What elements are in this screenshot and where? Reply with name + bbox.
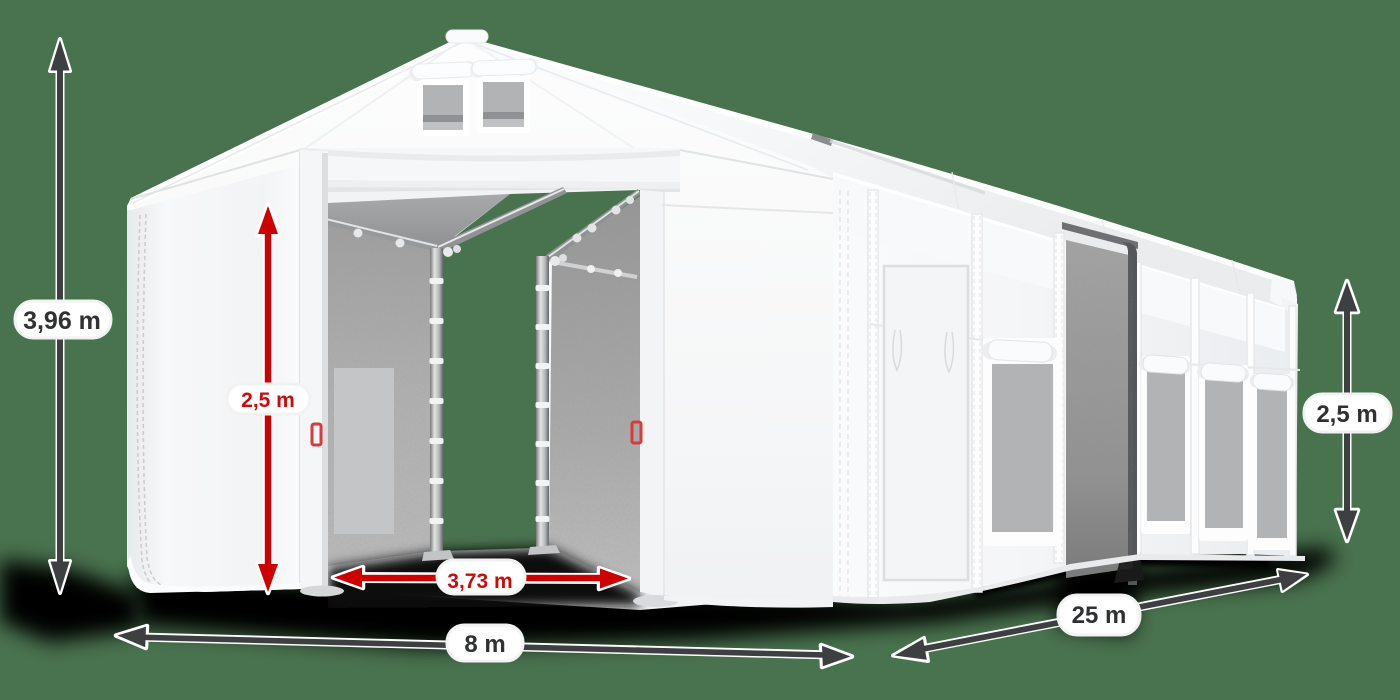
svg-text:2,5 m: 2,5 m bbox=[1316, 401, 1377, 428]
svg-text:8 m: 8 m bbox=[464, 631, 505, 658]
svg-text:3,73 m: 3,73 m bbox=[447, 570, 512, 593]
svg-text:3,96 m: 3,96 m bbox=[23, 307, 101, 335]
svg-text:25 m: 25 m bbox=[1072, 602, 1127, 629]
svg-text:2,5 m: 2,5 m bbox=[241, 389, 295, 412]
